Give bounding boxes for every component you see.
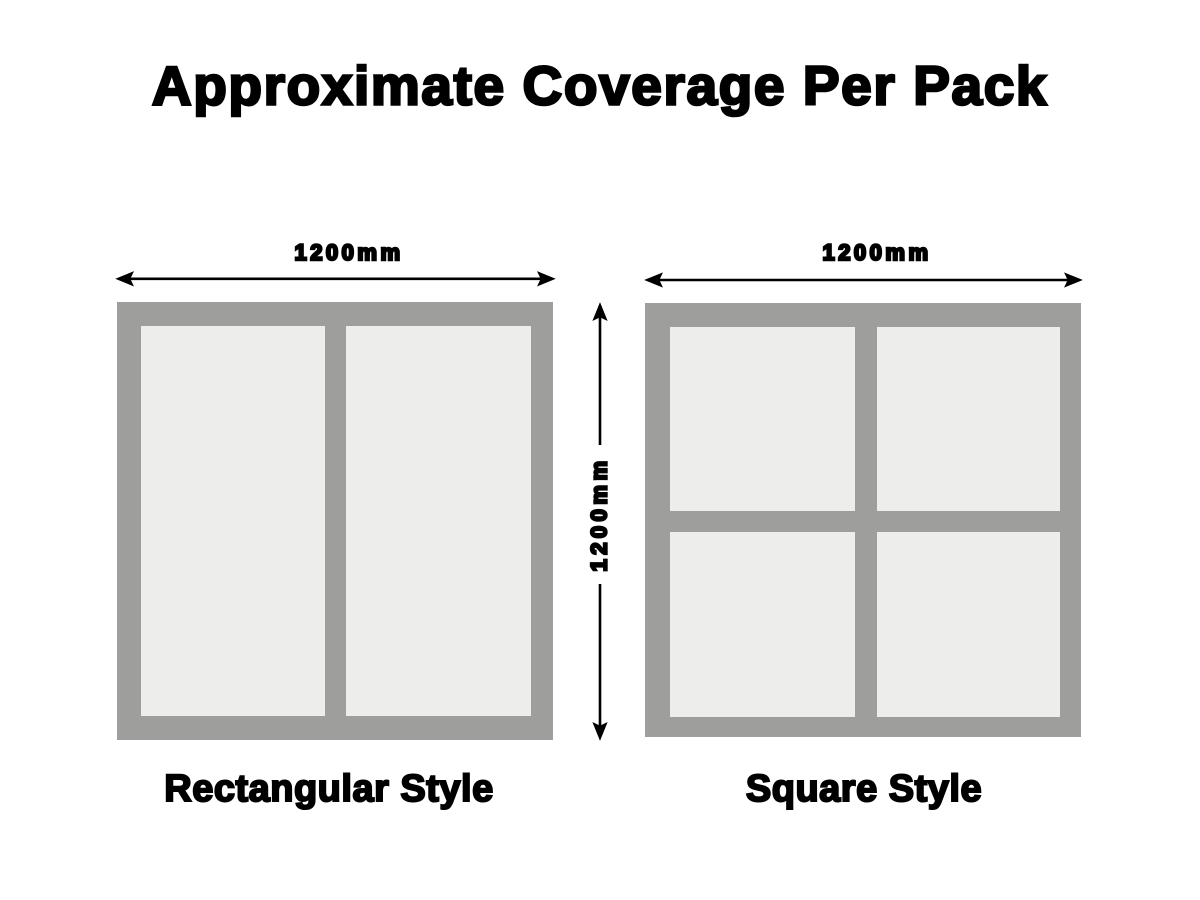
svg-text:1200mm: 1200mm (822, 240, 931, 265)
svg-text:Square Style: Square Style (746, 768, 982, 810)
svg-text:Rectangular Style: Rectangular Style (164, 768, 494, 810)
svg-text:1200mm: 1200mm (294, 240, 403, 265)
svg-text:Approximate Coverage Per Pack: Approximate Coverage Per Pack (152, 55, 1048, 117)
svg-text:1200mm: 1200mm (587, 456, 612, 571)
